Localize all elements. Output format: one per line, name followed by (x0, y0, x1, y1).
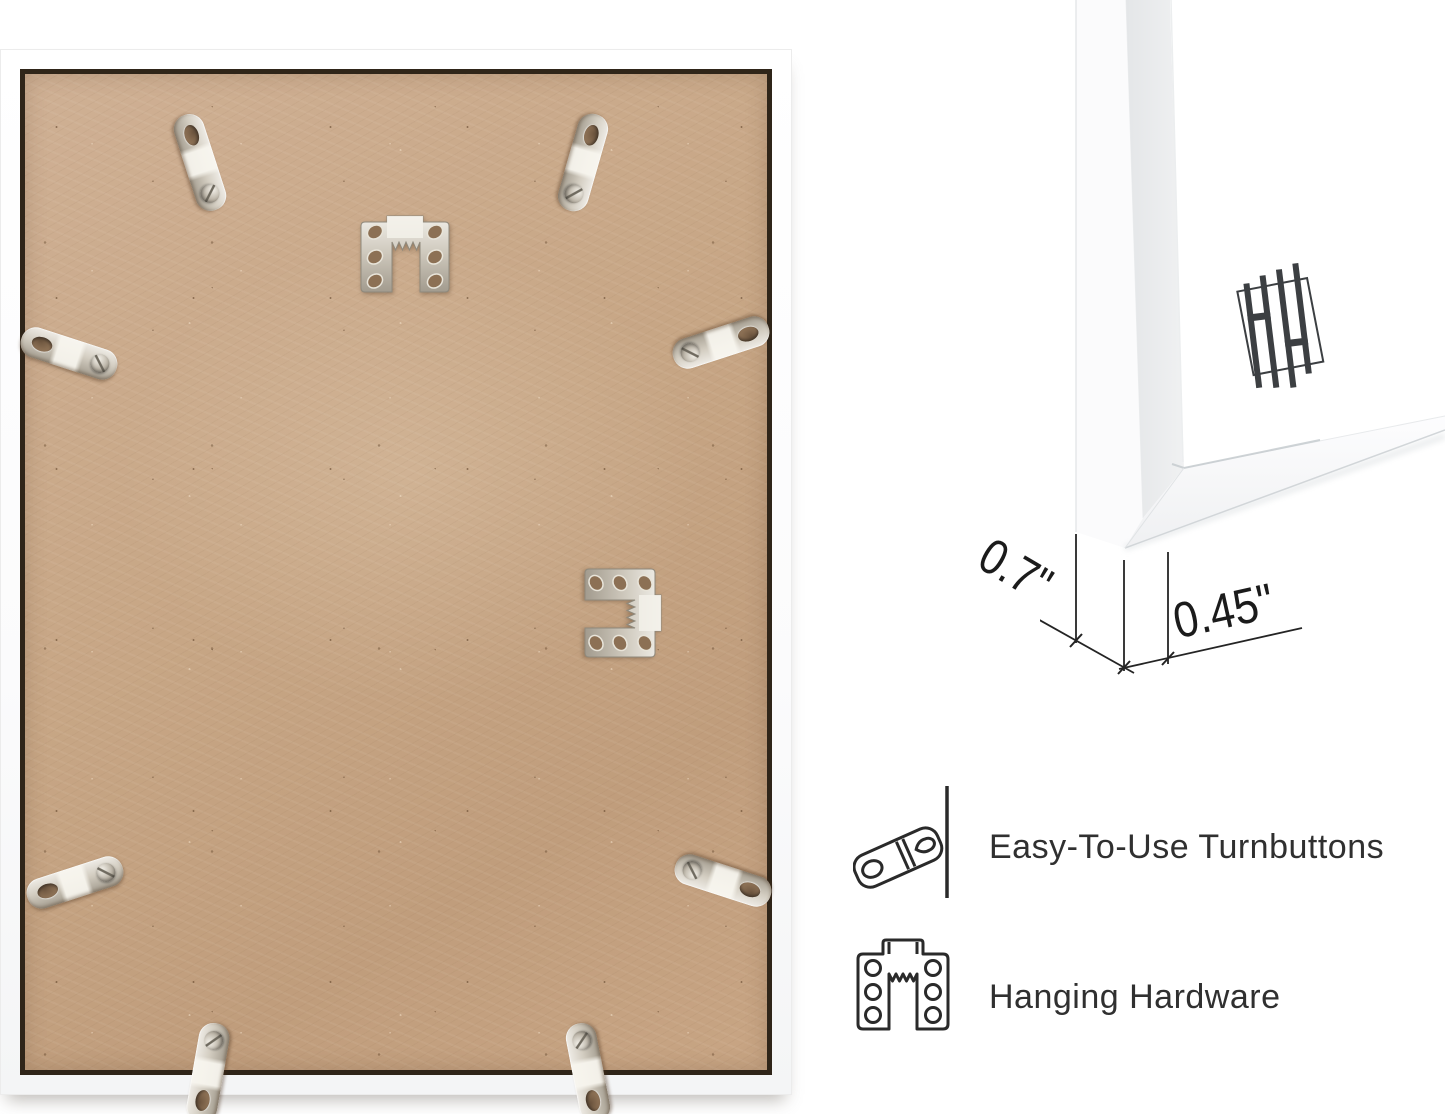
feature-turnbuttons-label: Easy-To-Use Turnbuttons (989, 828, 1384, 867)
feature-hanging-hardware-label: Hanging Hardware (989, 978, 1281, 1017)
dimension-line-depth (1040, 594, 1134, 673)
frame-back-photo (0, 49, 792, 1095)
sawtooth-hanger (581, 567, 665, 659)
turnbutton-icon (853, 782, 955, 902)
frame-front-face (1170, 0, 1445, 468)
hanging-hardware-icon (853, 934, 953, 1036)
sawtooth-hanger (359, 212, 451, 296)
product-image: 0.7" 0.45" Easy-To-Use Turnbuttons Hangi… (0, 0, 1445, 1114)
